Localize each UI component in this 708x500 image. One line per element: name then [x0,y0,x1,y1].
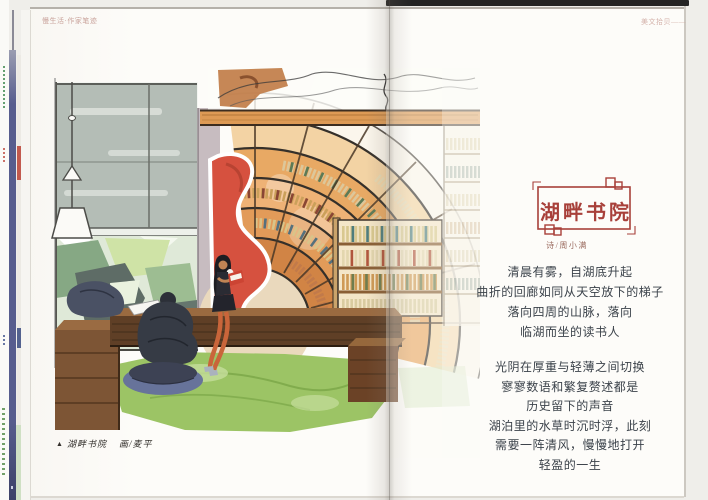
spine-blue-strip [9,50,16,500]
page-bottom-edge [30,496,684,498]
poem-stanza-2: 光阴在厚重与轻薄之间切换 寥寥数语和繁复赘述都是 历史留下的声音 湖泊里的水草时… [440,358,700,476]
poem-line: 历史留下的声音 [440,397,700,417]
poem-line: 清晨有雾，自湖底升起 [440,262,700,282]
running-head-right: 美文拾贝—— [608,17,686,27]
fore-edge-text-blue [3,335,5,347]
article-byline: 诗/周小满 [507,240,627,251]
poem-line: 寥寥数语和繁复赘述都是 [440,378,700,398]
illustration-caption: ▲湖畔书院画/麦平 [56,437,152,450]
spine-line [12,10,14,55]
caption-credit: 画/麦平 [119,439,153,449]
poem-line: 临湖而坐的读书人 [440,322,700,342]
caption-title: 湖畔书院 [67,439,107,449]
poem-stanza-1: 清晨有雾，自湖底升起 曲折的回廊如同从天空放下的梯子 落向四周的山脉，落向 临湖… [440,262,700,342]
poem-line: 落向四周的山脉，落向 [440,302,700,322]
page-stack-edge [21,10,31,500]
page-fold-line [389,0,390,500]
fore-edge-text-red [3,148,5,164]
scan-dark-strip [386,0,689,6]
fore-edge-text-green [3,66,5,110]
running-head-left: 慢生活·作家笔迹 [42,16,97,26]
caption-triangle-icon: ▲ [56,440,64,448]
pouf-cushion [123,362,203,395]
fore-edge-text-green2 [2,408,5,478]
illustration-lakeside-library [50,68,480,458]
poem-line: 曲折的回廊如同从天空放下的梯子 [440,282,700,302]
poem-line: 湖泊里的水草时沉时浮，此刻 [440,417,700,437]
article-title: 湖畔书院 [532,196,640,225]
page-top-edge [30,7,684,9]
poem-line: 轻盈的一生 [440,456,700,476]
poem-line: 需要一阵清风，慢慢地打开 [440,436,700,456]
poem-line: 光阴在厚重与轻薄之间切换 [440,358,700,378]
spine-mark [11,486,13,489]
